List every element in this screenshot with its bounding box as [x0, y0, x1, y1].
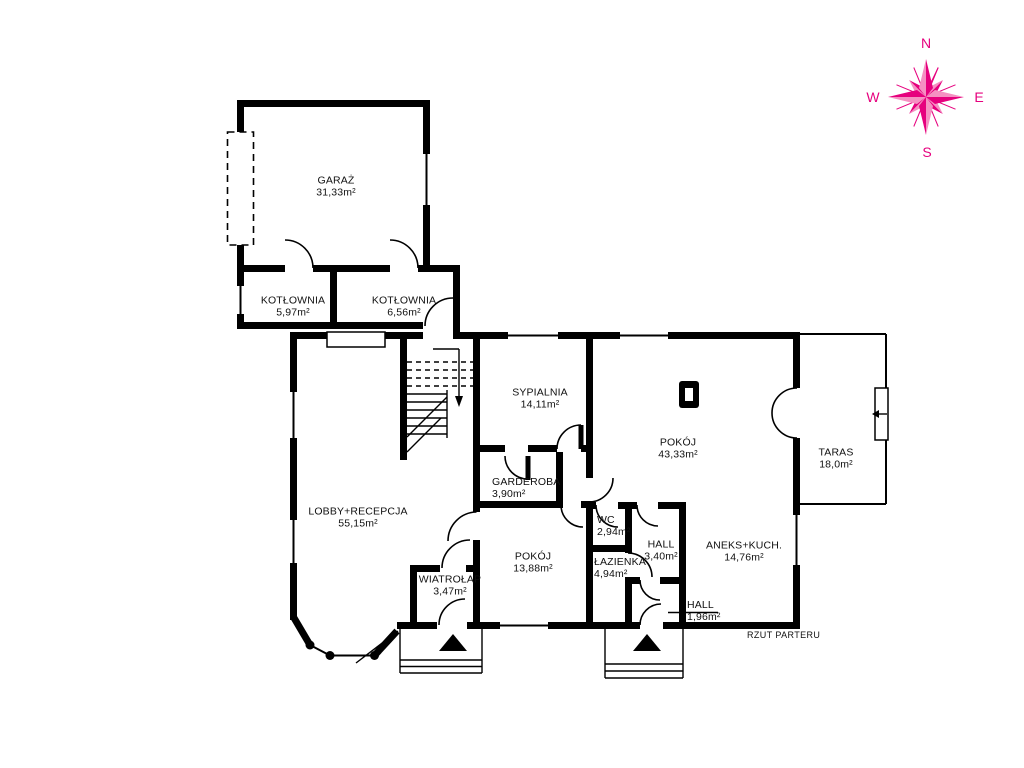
door-arc-room-small [561, 505, 583, 527]
room-label-living: POKÓJ 43,33m² [658, 438, 698, 461]
door-arc-entry-rear [640, 604, 661, 625]
terrace-outline [800, 334, 888, 504]
french-door-arc-bottom [772, 413, 797, 438]
door-arc-entry-front [439, 599, 465, 625]
door-arc-garage-left [285, 240, 313, 268]
entrance-triangle-front-icon [439, 634, 467, 651]
compass-e-label: E [974, 89, 983, 105]
room-label-garage: GARAŻ 31,33m² [316, 176, 356, 199]
room-label-kitchen-annex: ANEKS+KUCH. 14,76m² [706, 541, 782, 564]
room-label-bathroom: ŁAZIENKA 4,94m² [594, 557, 646, 580]
door-arc-bedroom [557, 425, 581, 449]
room-label-bedroom: SYPIALNIA 14,11m² [512, 388, 568, 411]
room-label-wc: WC 2,94m² [597, 515, 631, 538]
compass-star [888, 59, 964, 135]
room-label-hall: HALL 3,40m² [644, 540, 678, 563]
entrance-triangle-rear-icon [633, 634, 661, 651]
room-label-boiler-1: KOTŁOWNIA 5,97m² [261, 296, 325, 319]
door-arc-garage-right [390, 240, 418, 268]
stair-down-arrow-icon [455, 396, 463, 407]
room-label-wardrobe: GARDEROBA 3,90m² [492, 477, 560, 500]
room-label-terrace: TARAS 18,0m² [819, 448, 854, 471]
room-label-vestibule: WIATROŁAP 3,47m² [419, 575, 481, 598]
room-label-room-small: POKÓJ 13,88m² [513, 552, 553, 575]
staircase [407, 349, 473, 452]
plan-title: RZUT PARTERU [747, 630, 820, 640]
garage-door-dashed [228, 132, 254, 245]
compass-n-label: N [921, 35, 931, 51]
stair-direction-line [433, 349, 459, 398]
door-arc-hall-small [640, 580, 660, 600]
french-door-arc-top [772, 388, 797, 413]
floorplan-drawing: N E S W [0, 0, 1024, 768]
room-label-hall-small: HALL 1,96m² [687, 600, 721, 623]
room-label-boiler-2: KOTŁOWNIA 6,56m² [372, 296, 436, 319]
porch-rear [605, 629, 683, 678]
floorplan-page: N E S W GARAŻ 31,33m² KOTŁOWNIA 5,97m² K… [0, 0, 1024, 768]
door-arc-hall [637, 505, 658, 526]
compass-w-label: W [866, 89, 880, 105]
compass-rose: N E S W [866, 35, 983, 160]
compass-s-label: S [922, 144, 931, 160]
wall-recess [327, 332, 385, 347]
door-arc-vestibule [442, 540, 470, 568]
room-label-lobby: LOBBY+RECEPCJA 55,15m² [308, 507, 407, 530]
door-arc-living [589, 478, 613, 502]
door-arc-lobby [448, 512, 477, 541]
